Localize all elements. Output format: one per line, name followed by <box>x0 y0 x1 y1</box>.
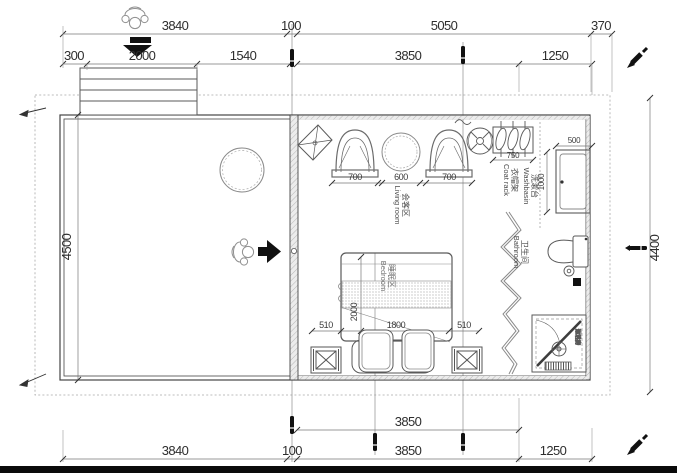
dim-chair-left: 700 <box>348 172 362 182</box>
dim-3840-bottom: 3840 <box>162 443 189 458</box>
dim-bed-width: 1800 <box>387 320 406 330</box>
floor-plan-drawing: 3840 100 5050 370 300 2000 1540 3850 125… <box>0 0 677 473</box>
dim-100-bottom: 100 <box>282 443 302 458</box>
dim-bed-side-right: 510 <box>457 320 471 330</box>
shower-label: 淋浴房 <box>574 329 582 346</box>
dim-100-top: 100 <box>281 18 301 33</box>
dim-basin-width: 500 <box>568 136 581 145</box>
dim-1540: 1540 <box>230 48 257 63</box>
coat-rack-label: 衣帽架 Coat rack <box>502 164 520 196</box>
dim-coat-rack: 750 <box>507 151 520 160</box>
dim-370-top: 370 <box>591 18 611 33</box>
dim-3850-top: 3850 <box>395 48 422 63</box>
foot-bench <box>352 330 434 373</box>
page-bottom-edge <box>0 466 677 473</box>
svg-text:Washbasin: Washbasin <box>522 168 531 205</box>
dim-bed-length: 2000 <box>349 302 359 321</box>
dim-4500-left: 4500 <box>59 233 74 260</box>
dim-300: 300 <box>64 48 84 63</box>
dim-2000-steps: 2000 <box>129 48 156 63</box>
bedside-table-left <box>311 347 341 373</box>
svg-text:Bathroom: Bathroom <box>512 236 521 269</box>
dim-table: 600 <box>394 172 408 182</box>
dim-4400-right: 4400 <box>647 234 662 261</box>
dim-3850-bottom-inner: 3850 <box>395 414 422 429</box>
floor-plan-page: 3840 100 5050 370 300 2000 1540 3850 125… <box>0 0 677 473</box>
svg-text:Coat rack: Coat rack <box>502 164 511 196</box>
dim-5050-top: 5050 <box>431 18 458 33</box>
bedroom-label: 睡眠区 Bedroom <box>379 261 396 291</box>
dim-1250-bottom: 1250 <box>540 443 567 458</box>
dim-bed-side-left: 510 <box>319 320 333 330</box>
entry-steps <box>80 68 197 115</box>
bathroom-label: 卫生间 Bathroom <box>512 236 530 269</box>
dim-3850-bottom: 3850 <box>395 443 422 458</box>
shower: 淋浴房 <box>532 315 586 372</box>
svg-text:Living room: Living room <box>393 186 402 225</box>
bedside-table-right <box>452 347 482 373</box>
partition-wall <box>290 115 298 380</box>
dim-chair-right: 700 <box>442 172 456 182</box>
svg-text:Bedroom: Bedroom <box>379 261 388 291</box>
dim-1250-top: 1250 <box>542 48 569 63</box>
floor-drain <box>573 278 581 286</box>
dim-3840-top: 3840 <box>162 18 189 33</box>
